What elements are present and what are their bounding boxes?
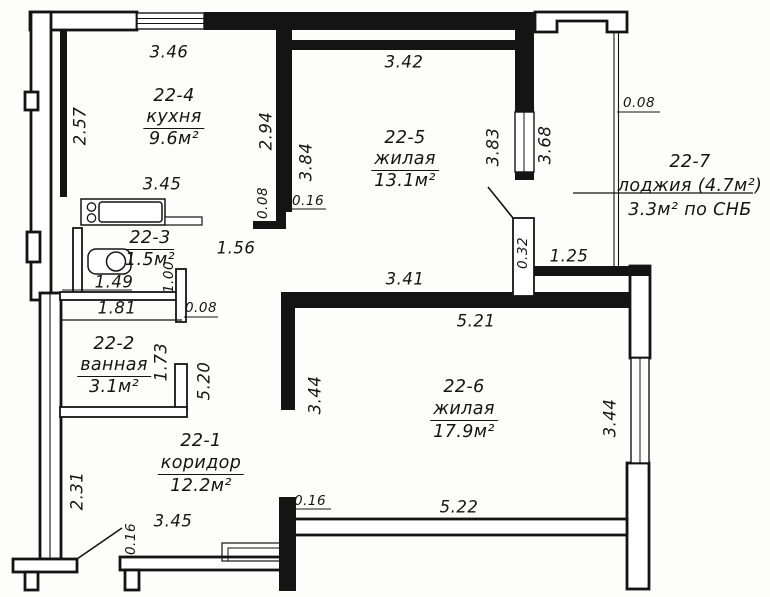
- room-id: 22-2: [93, 334, 134, 355]
- room-name: лоджия (4.7м²): [618, 174, 763, 198]
- dim-loggia-bottom-width: 1.25: [550, 247, 589, 266]
- dim-wc-door-width: 1.00: [161, 261, 177, 293]
- room-label-bathroom: 22-2 ванная 3.1м²: [77, 334, 151, 398]
- dim-corridor-bottom-width: 3.45: [154, 512, 193, 531]
- room-name: коридор: [158, 452, 244, 475]
- room-area: 13.1м²: [374, 171, 436, 192]
- dim-corridor-height: 5.20: [195, 362, 214, 401]
- dim-passage-width: 1.56: [217, 239, 256, 258]
- dim-living1-right-height: 3.83: [484, 128, 503, 167]
- sink-icon: [99, 202, 162, 222]
- room-label-loggia: 22-7 лоджия (4.7м²) 3.3м² по СНБ: [618, 150, 763, 222]
- dim-wall-thickness-top: 0.16: [292, 193, 324, 209]
- room-name: ванная: [77, 355, 151, 377]
- dim-corridor-left-height: 2.31: [68, 472, 87, 511]
- dim-living2-bottom-width: 5.22: [440, 498, 479, 517]
- room-area: 3.3м² по СНБ: [628, 198, 752, 222]
- burner-icon: [87, 203, 95, 211]
- room-id: 22-5: [384, 128, 425, 149]
- room-label-kitchen: 22-4 кухня 9.6м²: [143, 86, 204, 150]
- room-id: 22-7: [669, 150, 710, 174]
- dim-wall-thickness-corridor: 0.16: [294, 493, 326, 509]
- dim-living1-left-height: 3.84: [297, 143, 316, 182]
- window-kitchen-top: [137, 13, 204, 29]
- room-name: жилая: [430, 398, 498, 421]
- room-id: 22-1: [180, 430, 221, 452]
- dim-kitchen-bottom-width: 3.45: [143, 175, 182, 194]
- room-area: 12.2м²: [170, 475, 232, 497]
- loggia-glazing: [614, 32, 619, 266]
- room-id: 22-6: [443, 376, 484, 398]
- room-label-corridor: 22-1 коридор 12.2м²: [158, 430, 244, 497]
- dim-bathroom-height: 1.73: [152, 343, 171, 382]
- dim-pillar-width: 0.32: [515, 237, 531, 269]
- room-id: 22-4: [153, 86, 194, 107]
- burner-icon: [87, 214, 95, 222]
- dim-bathroom-top-width: 1.81: [98, 299, 137, 318]
- dim-living1-bottom-width: 3.41: [386, 270, 425, 289]
- dim-living2-top-width: 5.21: [457, 312, 496, 331]
- room-label-living2: 22-6 жилая 17.9м²: [430, 376, 498, 443]
- room-label-living1: 22-5 жилая 13.1м²: [371, 128, 439, 192]
- dim-loggia-glazing-thickness: 0.08: [623, 95, 655, 111]
- entrance-door-swing: [77, 528, 122, 559]
- dim-wall-thickness-wc: 0.08: [185, 300, 217, 316]
- room-area: 17.9м²: [433, 421, 495, 443]
- dim-living1-top-width: 3.42: [385, 53, 424, 72]
- window-living2-right: [631, 358, 649, 463]
- window-living1-loggia: [515, 112, 534, 172]
- room-area: 9.6м²: [149, 129, 199, 150]
- dim-entrance-wall-thickness: 0.16: [123, 523, 139, 555]
- room-name: жилая: [371, 149, 439, 171]
- loggia-door-swing: [488, 187, 513, 218]
- floor-plan-canvas: 22-4 кухня 9.6м² 22-5 жилая 13.1м² 22-3 …: [0, 0, 770, 597]
- room-name: кухня: [143, 107, 204, 129]
- room-area: 3.1м²: [89, 377, 139, 398]
- dim-kitchen-top-width: 3.46: [150, 43, 189, 62]
- dim-living2-left-height: 3.44: [306, 376, 325, 415]
- dim-kitchen-stub-thickness: 0.08: [255, 187, 271, 219]
- dim-kitchen-left-height: 2.57: [71, 107, 90, 146]
- dim-wc-width: 1.49: [95, 273, 134, 292]
- room-id: 22-3: [126, 228, 173, 250]
- dim-living2-right-height: 3.44: [601, 399, 620, 438]
- dim-loggia-left-height: 3.68: [536, 126, 555, 165]
- dim-kitchen-right-height: 2.94: [257, 112, 276, 151]
- kitchen-counter: [81, 199, 202, 225]
